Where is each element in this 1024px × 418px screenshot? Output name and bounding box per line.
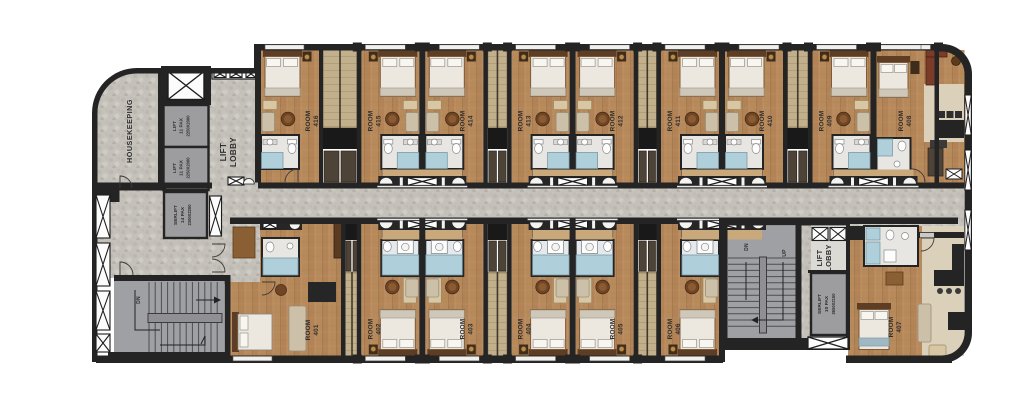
svg-text:ROOM: ROOM: [610, 111, 617, 132]
svg-text:409: 409: [827, 115, 834, 127]
svg-text:406: 406: [675, 323, 682, 335]
svg-text:ROOM: ROOM: [667, 319, 674, 340]
svg-text:ROOM: ROOM: [367, 111, 374, 132]
svg-text:412: 412: [618, 115, 625, 127]
svg-text:416: 416: [313, 115, 320, 127]
svg-text:2650X2150: 2650X2150: [831, 293, 836, 315]
svg-text:405: 405: [618, 323, 625, 335]
svg-text:ROOM: ROOM: [759, 111, 766, 132]
svg-text:410: 410: [767, 115, 774, 127]
svg-text:411: 411: [675, 115, 682, 126]
svg-text:407: 407: [896, 321, 903, 333]
svg-text:11 PAX: 11 PAX: [179, 159, 185, 176]
svg-text:LIFT: LIFT: [172, 163, 178, 173]
svg-text:ROOM: ROOM: [305, 320, 312, 341]
svg-text:HOUSEKEEPING: HOUSEKEEPING: [125, 99, 134, 163]
svg-text:LIFT: LIFT: [219, 143, 228, 161]
svg-text:ROOM: ROOM: [667, 111, 674, 132]
svg-text:2250X2000: 2250X2000: [186, 115, 191, 137]
svg-text:UP: UP: [782, 249, 788, 257]
svg-text:ROOM: ROOM: [459, 111, 466, 132]
svg-text:ROOM: ROOM: [459, 319, 466, 340]
svg-text:10 PAX: 10 PAX: [824, 295, 830, 312]
svg-text:14 PAX: 14 PAX: [180, 206, 186, 223]
svg-text:408: 408: [906, 115, 913, 127]
svg-text:403: 403: [467, 323, 474, 335]
svg-text:LIFT: LIFT: [172, 121, 178, 131]
svg-text:11 PAX: 11 PAX: [179, 117, 185, 134]
svg-text:404: 404: [526, 323, 533, 335]
svg-text:ROOM: ROOM: [610, 319, 617, 340]
svg-text:414: 414: [467, 115, 474, 127]
svg-text:413: 413: [526, 115, 533, 127]
svg-text:ROOM: ROOM: [898, 111, 905, 132]
svg-text:ROOM: ROOM: [367, 319, 374, 340]
svg-text:LIFT: LIFT: [815, 249, 824, 266]
svg-text:415: 415: [375, 115, 382, 127]
svg-text:DN: DN: [744, 243, 750, 251]
svg-text:ROOM: ROOM: [518, 319, 525, 340]
svg-text:ROOM: ROOM: [305, 111, 312, 132]
svg-text:401: 401: [313, 324, 320, 336]
svg-text:ROOM: ROOM: [888, 317, 895, 338]
svg-text:DN: DN: [136, 296, 142, 304]
svg-text:LOBBY: LOBBY: [824, 244, 833, 271]
svg-text:ROOM: ROOM: [518, 111, 525, 132]
svg-text:2250X2000: 2250X2000: [186, 157, 191, 179]
svg-text:402: 402: [375, 323, 382, 335]
svg-text:2300X2200: 2300X2200: [187, 204, 192, 226]
svg-text:ROOM: ROOM: [819, 111, 826, 132]
svg-text:SERLIFT: SERLIFT: [173, 205, 179, 225]
svg-text:LOBBY: LOBBY: [229, 137, 238, 167]
svg-text:SERLIFT: SERLIFT: [817, 294, 823, 314]
